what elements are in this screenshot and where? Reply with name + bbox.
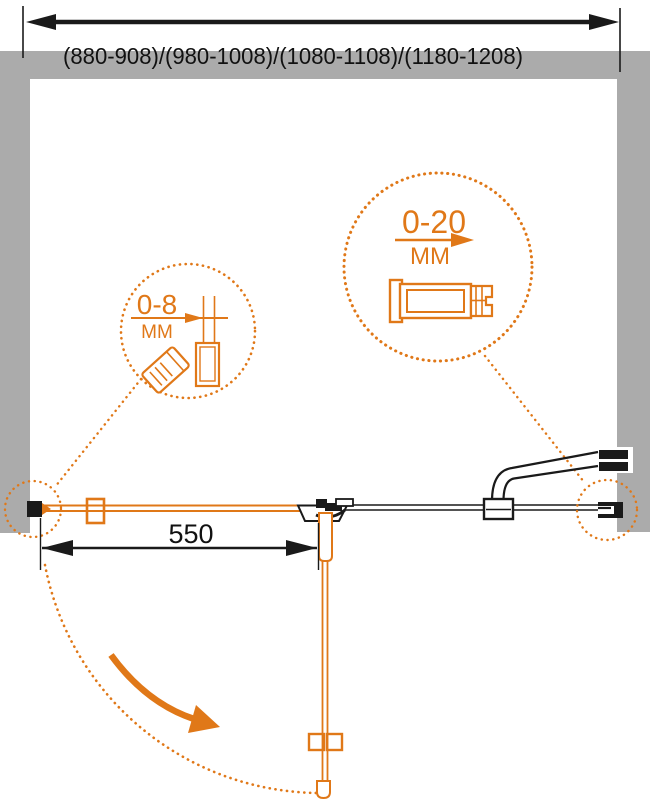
support-bar-wall-cap [599,450,628,459]
arrowhead-left-icon [26,14,56,30]
arrowhead-right-icon [286,540,317,556]
wall-profile-left-body [27,501,42,517]
hinge-profile-icon [141,346,190,393]
swing-arrowhead-icon [188,705,220,733]
swing-arc [45,565,318,793]
arrowhead-left-icon [42,540,73,556]
wall-left [0,51,30,533]
overall-width-label: (880-908)/(980-1008)/(1080-1108)/(1180-1… [63,43,523,69]
door-swing [45,565,318,793]
arrowhead-right-icon [589,14,619,30]
door-stile-profile [319,513,332,561]
diagram-canvas: (880-908)/(980-1008)/(1080-1108)/(1180-1… [0,0,650,800]
support-bar-wall-cap [599,462,628,471]
leader-small-bubble [55,379,141,487]
detail-small-range-label: 0-8 [137,289,177,320]
door-knob [327,734,342,750]
support-bar-inner-edge [504,466,599,501]
hinge-cap [336,499,353,506]
door-bottom-guide [317,781,330,798]
door-open-panel [309,513,342,798]
door-width-dimension: 550 [41,518,319,570]
swing-arrow-shaft [111,655,194,719]
detail-small-unit-label: MM [141,322,173,343]
detail-large-range-label: 0-20 [402,204,466,240]
door-width-label: 550 [168,519,213,549]
wall-profile-section-icon [390,280,492,322]
detail-small-arrowhead-icon [185,313,203,323]
fixed-panel [318,505,608,510]
detail-bubble-large: 0-20 MM [344,173,532,361]
detail-large-unit-label: MM [410,243,450,270]
shower-door-plan-diagram: (880-908)/(980-1008)/(1080-1108)/(1180-1… [0,0,650,800]
